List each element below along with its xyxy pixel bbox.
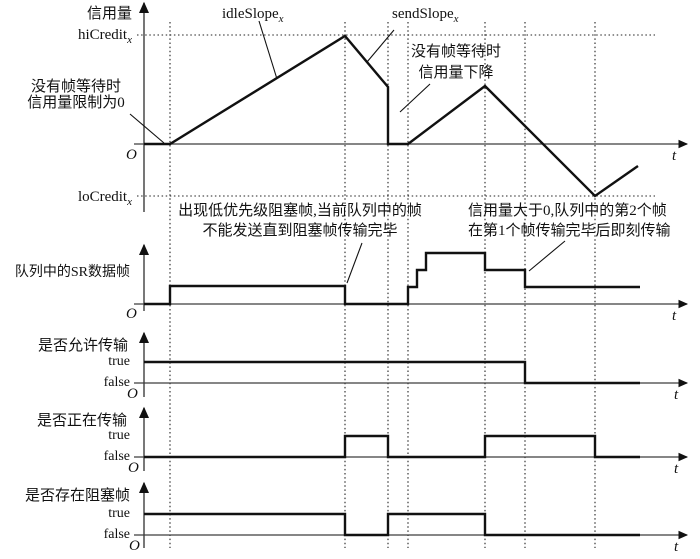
origin-label-transmitting: O (128, 460, 139, 476)
panel-axes (134, 3, 687, 548)
queue-panel-label: 队列中的SR数据帧 (15, 265, 130, 281)
allow-panel-label: 是否允许传输 (38, 338, 128, 354)
lo-credit-label: loCreditx (78, 189, 132, 210)
time-label-credit: t (672, 148, 676, 164)
time-label-allow: t (674, 387, 678, 403)
credit-curve (144, 36, 638, 196)
origin-label-allow: O (127, 386, 138, 402)
hi-credit-label: hiCreditx (78, 27, 132, 48)
transmitting-true-label: true (108, 428, 130, 444)
idle-slope-pointer (259, 21, 277, 79)
blocking-note-pointer (347, 243, 362, 283)
credit-drop-note: 没有帧等待时 信用量下降 (400, 42, 512, 84)
credit-positive-note: 信用量大于0,队列中的第2个帧 在第1个帧传输完毕后即刻传输 (468, 201, 671, 241)
origin-label-blocking: O (129, 538, 140, 554)
allow-true-label: true (108, 354, 130, 370)
blocking-false-label: false (104, 527, 130, 543)
blocking-true-label: true (108, 506, 130, 522)
transmitting-false-label: false (104, 449, 130, 465)
waveforms (144, 36, 640, 535)
send-slope-label: sendSlopex (392, 6, 459, 27)
origin-label-credit: O (126, 147, 137, 163)
blocking-panel-label: 是否存在阻塞帧 (25, 488, 130, 504)
blocking-signal (144, 514, 640, 535)
no-frame-limit-pointer (130, 114, 164, 143)
queue-frames (144, 253, 640, 304)
time-label-queue: t (672, 308, 676, 324)
idle-slope-label: idleSlopex (222, 6, 284, 27)
blocking-frame-note: 出现低优先级阻塞帧,当前队列中的帧 不能发送直到阻塞帧传输完毕 (160, 201, 440, 241)
origin-label-queue: O (126, 306, 137, 322)
transmitting-signal (144, 436, 640, 457)
credit-positive-pointer (529, 241, 565, 271)
timing-diagram-figure: 信用量 hiCreditx 没有帧等待时 信用量限制为0 loCreditx i… (0, 0, 700, 559)
no-frame-limit-note: 没有帧等待时 信用量限制为0 (18, 79, 134, 111)
credit-axis-label: 信用量 (87, 6, 132, 22)
transmitting-panel-label: 是否正在传输 (37, 413, 127, 429)
time-label-blocking: t (674, 539, 678, 555)
credit-drop-pointer (400, 84, 430, 112)
time-label-transmitting: t (674, 461, 678, 477)
allow-signal (144, 362, 640, 383)
